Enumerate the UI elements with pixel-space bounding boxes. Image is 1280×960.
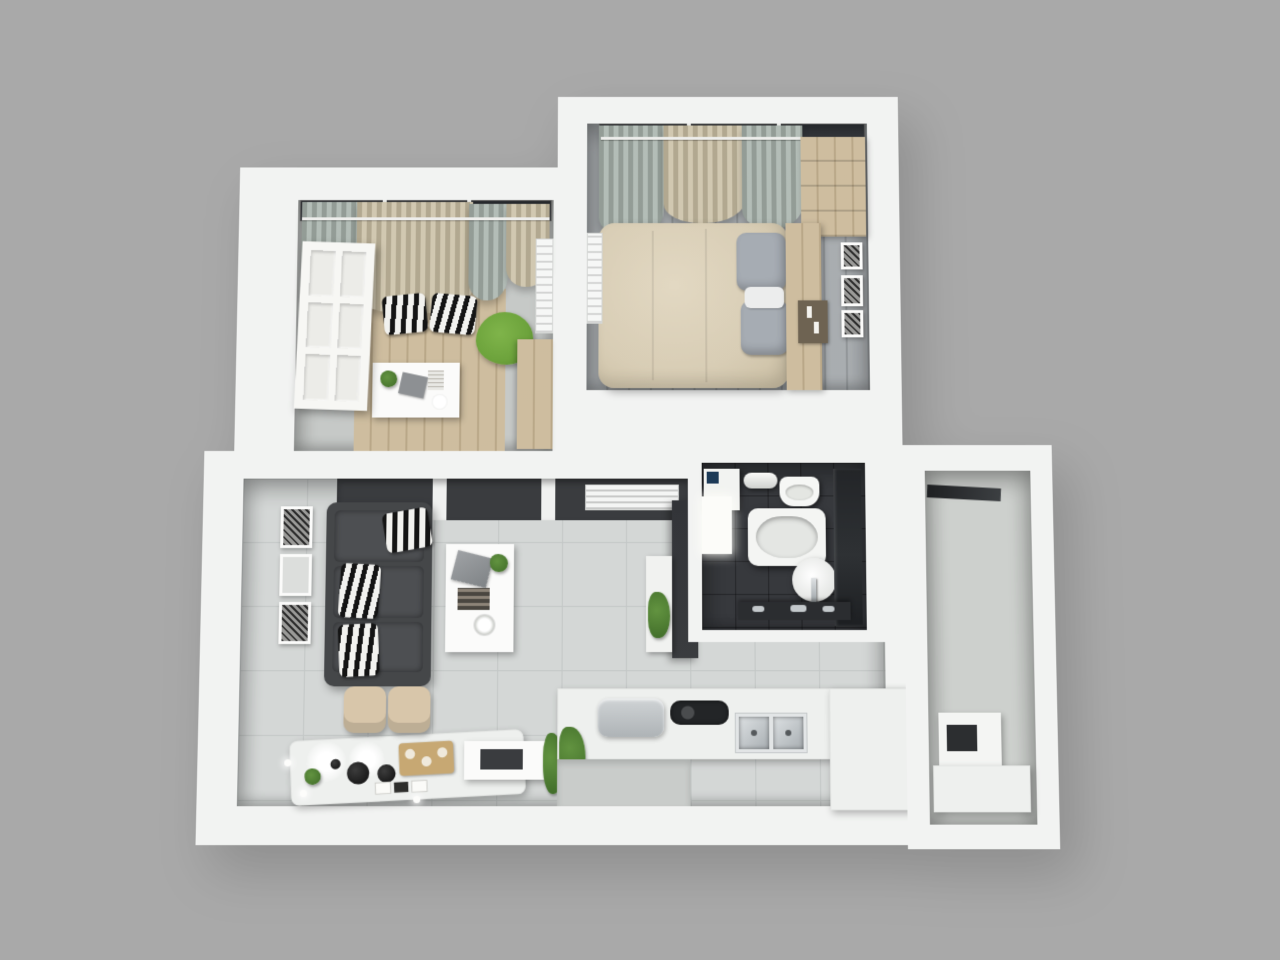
sofa: [324, 502, 433, 686]
toilet-seat: [785, 485, 813, 501]
sink-basin: [739, 717, 769, 749]
chrome-tap: [790, 605, 806, 612]
round-plate: [473, 614, 495, 636]
plate-setting: [376, 783, 391, 794]
utility-counter: [933, 765, 1031, 812]
desk-gray-mat: [398, 372, 428, 398]
laptop: [451, 550, 493, 588]
desk-plant: [380, 371, 397, 388]
tray-plate: [405, 749, 416, 760]
bedroom-picture-frame: [841, 310, 863, 337]
door-panel: [337, 303, 363, 349]
bar-plant: [304, 768, 321, 785]
zebra-sofa-pillow: [338, 623, 380, 677]
entrance-step: [557, 759, 691, 806]
vanity-ledge: [738, 602, 850, 620]
side-table: [464, 741, 545, 780]
shelf-plant: [648, 592, 670, 638]
door-panel: [334, 355, 361, 401]
zebra-floor-cushion: [429, 293, 478, 336]
office-door-open: [294, 241, 376, 411]
washbasin: [792, 558, 836, 602]
bathtub-basin: [756, 516, 818, 558]
room-utility: [902, 445, 1060, 849]
door-panel: [303, 354, 330, 400]
bedroom-picture-frame: [841, 242, 863, 269]
headboard-candle-tray: [798, 300, 828, 343]
bar-chair: [343, 686, 386, 733]
bedroom-picture-frame: [841, 275, 863, 306]
gold-tray: [398, 741, 454, 776]
office-desk: [372, 363, 460, 418]
coffee-table: [445, 544, 514, 652]
door-panel: [340, 251, 366, 297]
sphere-floor-light: [413, 796, 420, 803]
rolled-towel-shelf: [744, 473, 778, 489]
render-canvas: [0, 0, 1280, 960]
bedroom-curtain-gray-right: [742, 125, 804, 228]
frame-art-plain: [282, 557, 309, 593]
countertop-appliance: [598, 698, 665, 736]
dark-tray: [480, 749, 523, 769]
room-bedroom: [556, 97, 902, 459]
office-radiator: [535, 239, 553, 334]
room-home-office: [234, 167, 579, 458]
candle: [814, 322, 819, 334]
black-bowl: [347, 761, 370, 785]
candle: [807, 306, 812, 318]
magazine: [458, 588, 490, 610]
plate-setting: [394, 782, 409, 793]
frame-art: [283, 509, 310, 545]
door-panel: [306, 302, 333, 348]
toilet: [779, 477, 819, 507]
living-picture-frame: [279, 554, 312, 596]
tray-plate: [421, 756, 432, 767]
frame-art: [844, 313, 860, 334]
bedroom-curtain-gray-left: [599, 125, 664, 236]
bed-crease: [652, 231, 654, 380]
zebra-floor-cushion: [382, 292, 429, 335]
zebra-sofa-pillow: [338, 563, 382, 619]
frame-art: [281, 605, 308, 641]
bedroom-radiator: [587, 233, 603, 324]
office-curtain-rail: [302, 217, 550, 220]
frame-art: [844, 278, 860, 303]
frame-art: [844, 245, 860, 266]
desk-papers: [428, 371, 444, 391]
bedroom-curtain-beige: [663, 125, 746, 223]
living-picture-frame: [280, 506, 313, 548]
desk-plate: [432, 394, 448, 410]
bathroom-door: [702, 496, 732, 554]
ac-vent: [585, 485, 679, 511]
coffee-table-plant: [490, 554, 508, 572]
living-picture-frame: [278, 602, 311, 644]
appliance-door: [947, 725, 978, 751]
washer-control-panel: [707, 472, 719, 484]
bedroom-wardrobe-stepped: [800, 137, 866, 237]
cooktop: [670, 701, 729, 725]
chrome-tap: [822, 606, 834, 612]
plate-setting: [412, 781, 427, 792]
bar-chair: [388, 686, 431, 733]
basin-faucet: [811, 578, 816, 604]
chrome-tap: [752, 606, 764, 612]
sink-drain: [785, 730, 791, 736]
bed-pillow: [741, 300, 789, 354]
apartment-floorplan: [0, 18, 1280, 960]
kitchen-counter-right: [829, 688, 911, 810]
double-sink: [735, 713, 808, 754]
zebra-sofa-pillow: [381, 507, 433, 554]
bed-pillow: [736, 233, 786, 291]
tray-plate: [437, 747, 448, 758]
sink-drain: [751, 730, 757, 736]
utility-appliance: [938, 713, 1002, 768]
door-panel: [309, 250, 335, 296]
sink-basin: [773, 717, 804, 749]
bed-white-throw: [745, 287, 785, 308]
black-bowl: [377, 764, 396, 783]
office-side-cabinet: [517, 339, 553, 449]
room-bathroom: [688, 451, 889, 642]
